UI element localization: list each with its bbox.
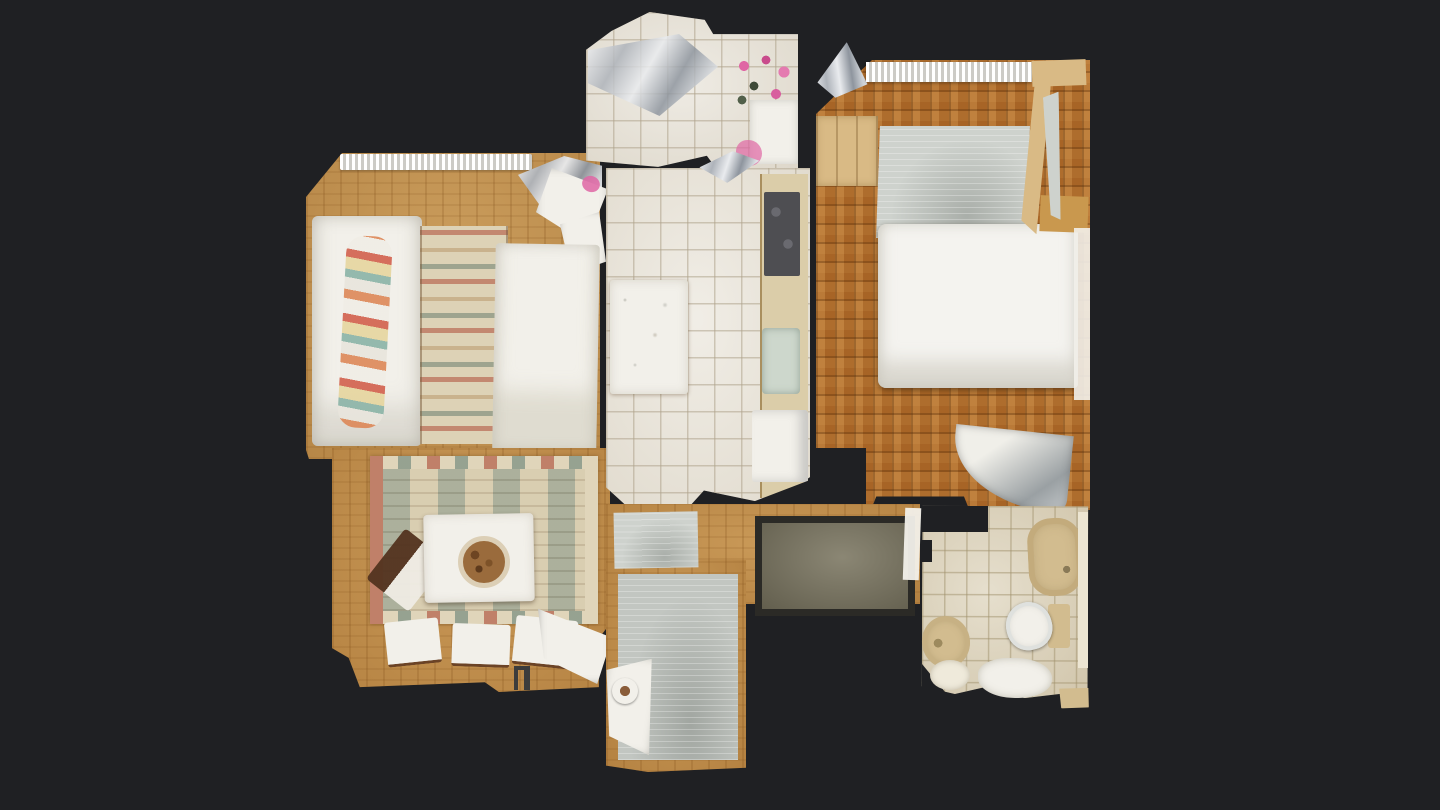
wall-notch bbox=[922, 506, 988, 532]
door-handle-icon bbox=[514, 666, 530, 690]
towels bbox=[978, 658, 1052, 698]
bathroom-door-leaf bbox=[903, 508, 922, 581]
bedroom-rug bbox=[876, 126, 1030, 238]
double-bed bbox=[878, 224, 1078, 388]
wall-strip bbox=[1074, 228, 1090, 400]
floorplan-viewport[interactable] bbox=[0, 0, 1440, 810]
dining-chair bbox=[384, 617, 442, 667]
bathtub bbox=[1026, 517, 1084, 598]
wall-notch bbox=[816, 448, 866, 510]
cooktop bbox=[764, 192, 800, 276]
daybed bbox=[492, 243, 600, 453]
wall-notch bbox=[922, 540, 932, 562]
kitchen-sink bbox=[762, 328, 800, 394]
towels bbox=[930, 660, 970, 690]
pet-bowl bbox=[612, 678, 638, 704]
wardrobe bbox=[816, 116, 878, 186]
wall-strip bbox=[1078, 512, 1088, 668]
kitchen-table bbox=[610, 280, 688, 394]
small-gray-mat bbox=[614, 511, 699, 568]
wardrobe-top bbox=[866, 62, 1032, 82]
radiator bbox=[340, 154, 532, 170]
fruit-bowl bbox=[458, 536, 510, 588]
entry-doormat bbox=[755, 516, 915, 616]
dining-chair bbox=[451, 623, 510, 668]
refrigerator bbox=[752, 410, 808, 482]
